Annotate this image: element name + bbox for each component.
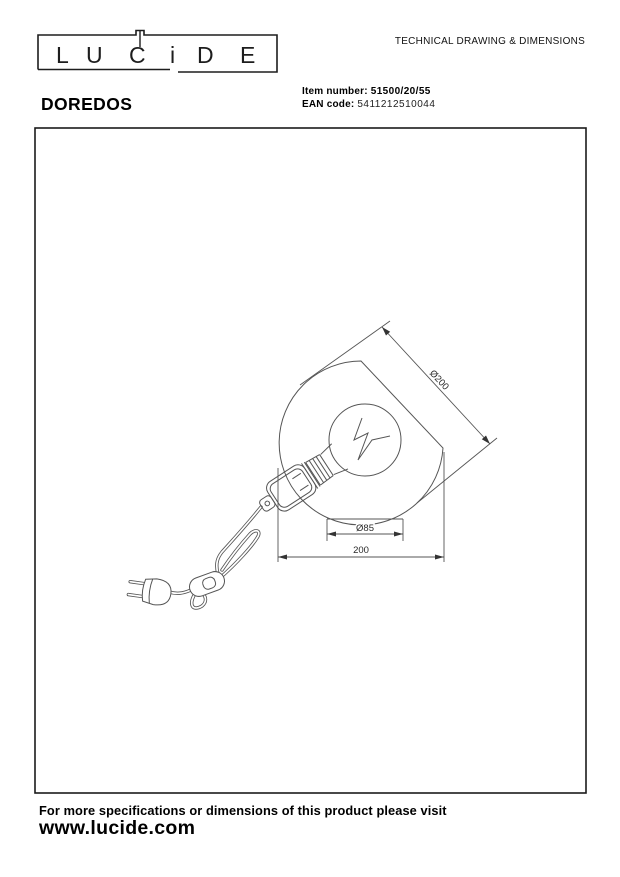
logo-letter-e: E — [240, 42, 255, 68]
power-plug — [127, 575, 172, 607]
dim-label-base-diameter: Ø85 — [356, 523, 374, 534]
datasheet-page: TECHNICAL DRAWING & DIMENSIONS DOREDOS I… — [0, 0, 620, 877]
filament — [354, 418, 390, 460]
logo-letter-d: D — [197, 42, 214, 68]
logo-letter-i: i — [170, 42, 175, 68]
dim-label-total-width: 200 — [353, 545, 369, 556]
light-bulb — [329, 404, 401, 476]
page-graphics: L U C i D E — [0, 0, 620, 877]
logo-letter-u: U — [86, 42, 103, 68]
drawing-frame — [35, 128, 586, 793]
cord-switch — [187, 569, 227, 599]
technical-drawing: Ø200 Ø85 200 — [127, 321, 497, 608]
dimension-shade-diameter: Ø200 — [300, 321, 497, 503]
lamp-socket — [253, 442, 350, 521]
logo-letter-c: C — [129, 42, 146, 68]
dimension-total-width: 200 — [278, 452, 444, 562]
power-cord — [169, 507, 261, 608]
lucide-logo: L U C i D E — [38, 31, 277, 73]
logo-letter-l: L — [56, 42, 69, 68]
